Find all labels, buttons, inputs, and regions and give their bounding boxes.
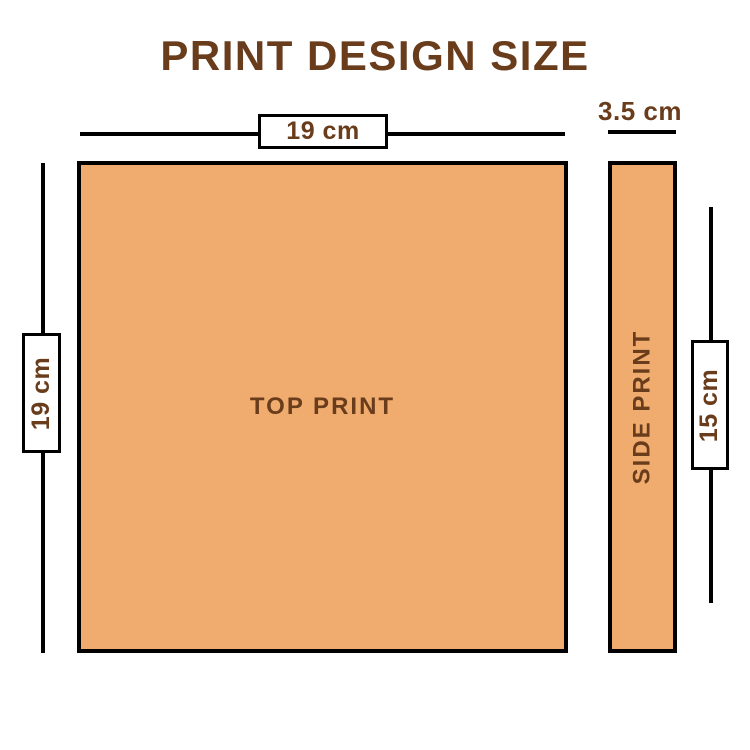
right-height-dimension-box: 15 cm xyxy=(691,340,729,470)
left-height-dimension-label: 19 cm xyxy=(27,356,56,429)
top-width-dimension-box: 19 cm xyxy=(258,114,388,149)
left-height-dimension-box: 19 cm xyxy=(22,333,61,453)
top-print-rect: TOP PRINT xyxy=(77,161,568,653)
top-print-label: TOP PRINT xyxy=(250,393,395,421)
page-title: PRINT DESIGN SIZE xyxy=(0,32,750,80)
side-print-label: SIDE PRINT xyxy=(629,330,657,485)
side-print-rect: SIDE PRINT xyxy=(608,161,677,653)
print-design-size-diagram: PRINT DESIGN SIZE 19 cm 3.5 cm 19 cm TOP… xyxy=(0,0,750,750)
side-width-dimension-line xyxy=(608,130,676,134)
top-width-dimension-label: 19 cm xyxy=(286,117,359,146)
side-width-dimension-label: 3.5 cm xyxy=(592,96,688,127)
right-height-dimension-label: 15 cm xyxy=(696,368,725,441)
